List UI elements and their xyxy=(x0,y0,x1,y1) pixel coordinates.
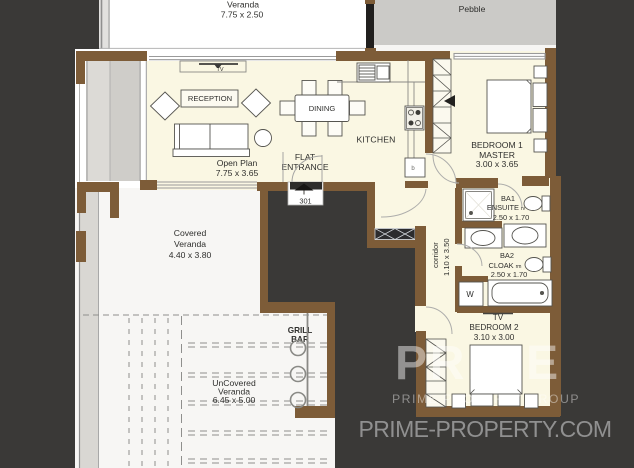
svg-text:BA2: BA2 xyxy=(500,251,514,260)
svg-text:BA1: BA1 xyxy=(501,194,515,203)
svg-text:301: 301 xyxy=(299,197,311,206)
svg-text:corridor: corridor xyxy=(431,242,440,268)
svg-text:7.75 x 3.65: 7.75 x 3.65 xyxy=(216,168,259,178)
svg-text:DINING: DINING xyxy=(309,104,336,113)
svg-text:3.00 x 3.65: 3.00 x 3.65 xyxy=(476,159,519,169)
svg-text:PRIME-PROPERTY.COM: PRIME-PROPERTY.COM xyxy=(359,416,612,442)
svg-text:ENSUITE rv: ENSUITE rv xyxy=(487,203,526,212)
svg-text:Covered: Covered xyxy=(174,228,207,238)
svg-text:KITCHEN: KITCHEN xyxy=(356,135,395,145)
svg-text:Veranda: Veranda xyxy=(174,239,206,249)
svg-text:2.50 x 1.70: 2.50 x 1.70 xyxy=(493,213,530,222)
svg-text:GRILL: GRILL xyxy=(288,326,313,335)
svg-text:Pebble: Pebble xyxy=(459,4,486,14)
svg-text:PRIME: PRIME xyxy=(395,337,561,390)
svg-text:7.75 x 2.50: 7.75 x 2.50 xyxy=(221,10,264,20)
svg-text:6.45 x 5.00: 6.45 x 5.00 xyxy=(213,395,256,405)
svg-text:4.40 x 3.80: 4.40 x 3.80 xyxy=(169,250,212,260)
svg-text:PRIME PROPERTY GROUP: PRIME PROPERTY GROUP xyxy=(392,392,580,406)
svg-text:Open Plan: Open Plan xyxy=(217,158,258,168)
svg-text:BEDROOM 1: BEDROOM 1 xyxy=(471,140,523,150)
svg-text:RECEPTION: RECEPTION xyxy=(188,94,232,103)
svg-text:TV: TV xyxy=(493,313,504,322)
svg-text:2.50 x 1.70: 2.50 x 1.70 xyxy=(491,270,528,279)
svg-text:W: W xyxy=(466,290,474,299)
svg-text:Veranda: Veranda xyxy=(227,0,259,10)
svg-text:BEDROOM 2: BEDROOM 2 xyxy=(469,323,519,332)
svg-text:TV: TV xyxy=(216,67,223,73)
svg-text:1.10 x 3.50: 1.10 x 3.50 xyxy=(442,238,451,276)
